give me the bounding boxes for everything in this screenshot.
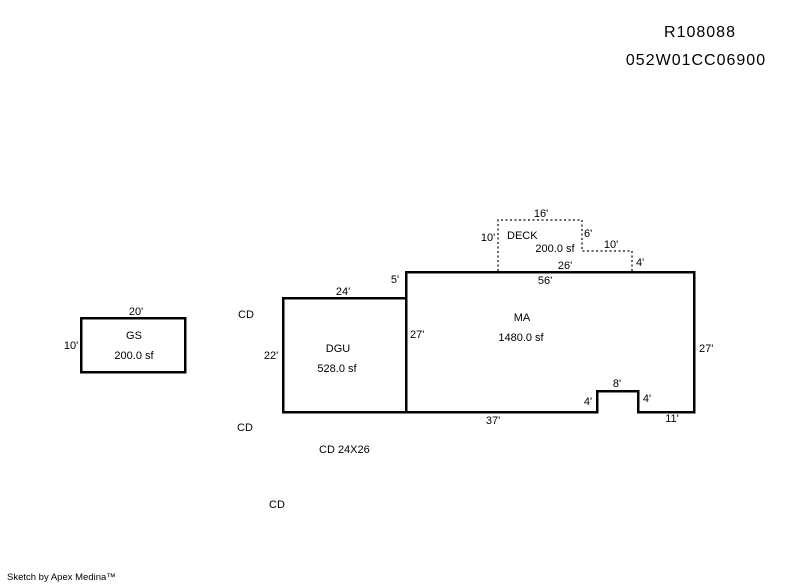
deck-dim-right: 6' [584, 228, 592, 240]
ma-dim-right: 27' [699, 343, 713, 355]
gs-dim-top: 20' [129, 306, 143, 318]
ma-dim-bottom-right: 11' [665, 413, 679, 425]
ma-dim-bottom-left: 37' [486, 415, 500, 427]
gs-label: GS [126, 330, 142, 342]
ma-area: 1480.0 sf [498, 332, 544, 344]
deck-dim-left: 10' [481, 232, 495, 244]
deck-dim-step-right: 4' [636, 257, 644, 269]
ma-dim-left-inner: 27' [410, 329, 424, 341]
ma-dim-notch-right: 4' [643, 393, 651, 405]
dgu-outline [283, 298, 406, 412]
deck-area: 200.0 sf [535, 243, 575, 255]
deck-dim-bottom: 26' [558, 260, 572, 272]
record-id: R108088 [664, 24, 736, 41]
ma-dim-notch-top: 8' [613, 378, 621, 390]
gs-dim-left: 10' [64, 340, 78, 352]
dgu-area: 528.0 sf [317, 363, 357, 375]
parcel-id: 052W01CC06900 [626, 52, 766, 69]
sketch-credit: Sketch by Apex Medina™ [7, 572, 116, 583]
annotation-cd-bottom: CD [269, 499, 285, 511]
ma-dim-notch-left: 4' [584, 396, 592, 408]
ma-label: MA [514, 312, 531, 324]
ma-dim-top: 56' [538, 275, 552, 287]
property-sketch-page: R108088 052W01CC06900 DECK 200.0 sf 16' … [0, 0, 800, 587]
gs-outline [81, 318, 185, 372]
ma-dim-left-upper: 5' [391, 274, 399, 286]
annotation-cd-size: CD 24X26 [319, 444, 370, 456]
sketch-canvas: R108088 052W01CC06900 DECK 200.0 sf 16' … [0, 0, 800, 587]
gs-area: 200.0 sf [114, 350, 154, 362]
dgu-label: DGU [326, 343, 351, 355]
ma-outline [406, 272, 694, 412]
dgu-dim-top: 24' [336, 286, 350, 298]
deck-dim-step-top: 10' [604, 239, 618, 251]
deck-dim-top: 16' [534, 208, 548, 220]
deck-label: DECK [507, 230, 538, 242]
annotation-cd-lower: CD [237, 422, 253, 434]
dgu-dim-left: 22' [264, 350, 278, 362]
annotation-cd-upper: CD [238, 309, 254, 321]
